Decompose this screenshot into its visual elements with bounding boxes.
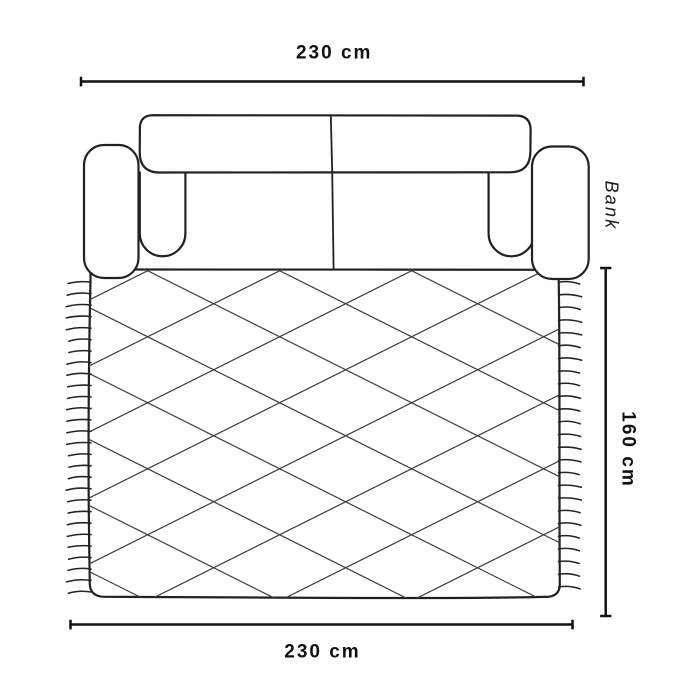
svg-text:230 cm: 230 cm xyxy=(284,642,360,663)
svg-text:230 cm: 230 cm xyxy=(296,43,372,64)
svg-text:Bank: Bank xyxy=(602,181,622,231)
svg-text:160 cm: 160 cm xyxy=(618,411,639,487)
